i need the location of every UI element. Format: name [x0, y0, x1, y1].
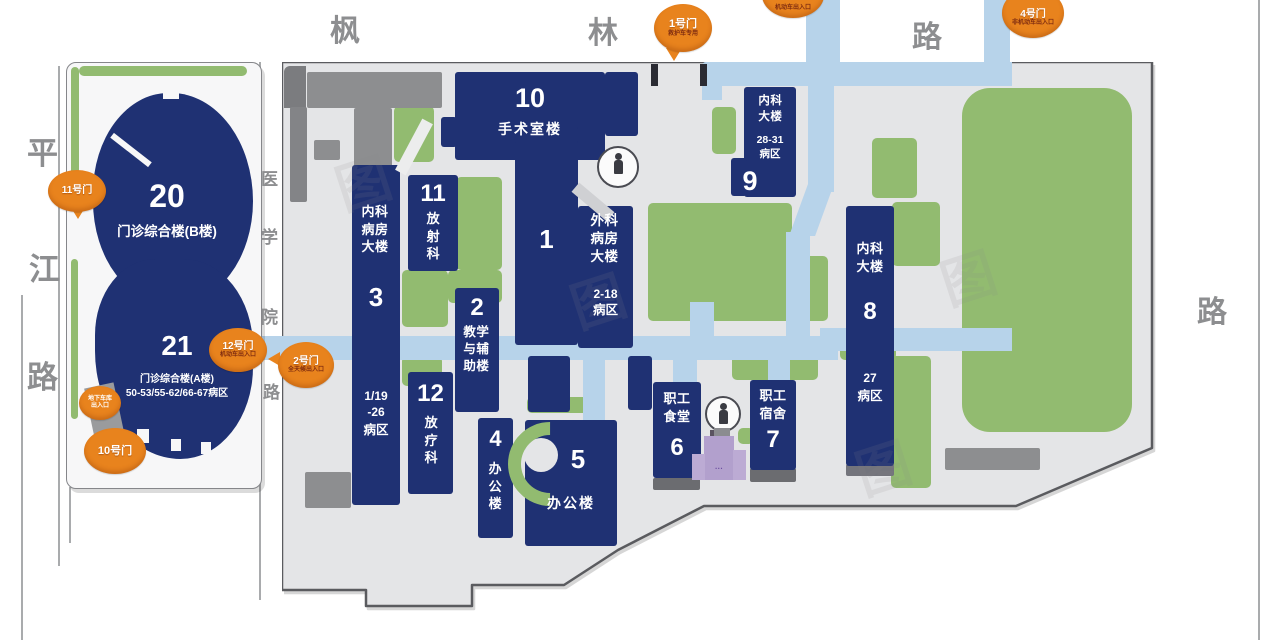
building-10-wing[interactable] [605, 72, 638, 136]
road-label-pingjiang-2: 江 [29, 244, 60, 289]
building-11-label: 放射科 [426, 210, 440, 263]
building-annex[interactable] [628, 356, 652, 410]
gate-4-label: 4号门 [1020, 9, 1046, 21]
garage-entrance-label: 出入口 [91, 403, 109, 410]
road-boundary-line [69, 487, 71, 543]
road-segment-top-horizontal[interactable] [702, 62, 1012, 86]
gray-building [307, 72, 442, 108]
gate-10-badge[interactable]: 10号门 [84, 428, 146, 474]
building-8-wards: 27 [846, 370, 894, 386]
gate-12-badge[interactable]: 12号门 机动车出入口 [209, 328, 267, 372]
gate-2-note: 全天候出入口 [288, 367, 324, 374]
gray-building [945, 448, 1040, 470]
outpatient-block: 20 门诊综合楼(B楼) 21 门诊综合楼(A楼) 50-53/55-62/66… [66, 62, 262, 489]
road-label-pingjiang-3: 路 [27, 352, 58, 397]
road-label-fenglin-3: 路 [912, 12, 942, 56]
building-5-number: 5 [539, 442, 617, 477]
purple-building[interactable] [704, 436, 734, 480]
gate-2-label: 2号门 [293, 356, 319, 368]
building-2-number: 2 [455, 292, 499, 324]
gate-11-label: 11号门 [62, 185, 93, 197]
purple-building-label: ··· [696, 464, 742, 473]
statue-icon [705, 396, 741, 432]
road-segment-vertical[interactable] [808, 84, 834, 192]
building-8-number: 8 [846, 296, 894, 328]
gray-building [305, 472, 351, 508]
hospital-campus-map: 平 江 路 枫 林 路 医 学 院 路 路 图 图 图 图 [0, 0, 1272, 640]
lawn [71, 67, 79, 185]
lawn [71, 259, 78, 419]
lawn [648, 203, 792, 321]
lawn [402, 270, 448, 327]
blob-notch [171, 439, 181, 451]
building-11-number: 11 [408, 178, 458, 210]
building-20-label: 门诊综合楼(B楼) [85, 223, 249, 241]
road-segment-stub[interactable] [702, 84, 722, 100]
road-label-yixueyuan-1: 医 [261, 165, 278, 190]
building-3-wards: 1/19 [352, 388, 400, 404]
gray-building [284, 66, 306, 108]
gate-2-badge[interactable]: 2号门 全天候出入口 [278, 342, 334, 388]
garage-entrance-badge[interactable]: 地下车库 出入口 [79, 386, 121, 420]
road-boundary-line [58, 66, 60, 566]
building-6-label: 职工食堂 [663, 390, 691, 425]
building-7-label: 职工宿舍 [759, 387, 787, 422]
gate-4-badge[interactable]: 4号门 非机动车出入口 [1002, 0, 1064, 38]
garage-entrance-label: 地下车库 [88, 396, 112, 403]
lawn [456, 177, 502, 270]
building-9-wards: 28-31 [744, 133, 796, 147]
gate-10-label: 10号门 [98, 445, 132, 458]
building-21-number: 21 [147, 327, 207, 365]
building-10-label: 手术室楼 [455, 120, 605, 139]
building-annex[interactable] [528, 356, 570, 412]
lawn [79, 66, 247, 76]
blob-notch [163, 89, 179, 99]
gate-12-note: 机动车出入口 [220, 352, 256, 359]
road-label-pingjiang-1: 平 [27, 128, 58, 173]
gate-4-note: 非机动车出入口 [1012, 20, 1054, 27]
road-label-yixueyuan-4: 路 [263, 378, 280, 403]
building-9-wards: 病区 [744, 147, 796, 161]
building-6-number: 6 [653, 432, 701, 464]
building-2-label: 教学与辅助楼 [463, 324, 490, 375]
gate-12-label: 12号门 [222, 341, 253, 353]
building-3-wards: 病区 [352, 422, 400, 439]
building-9-label: 内科大楼 [758, 94, 783, 125]
gate-1-note: 救护车专用 [668, 31, 698, 38]
building-3-number: 3 [352, 280, 400, 315]
road-label-right: 路 [1197, 287, 1227, 331]
building-1-panel-wards: 病区 [578, 302, 633, 319]
building-10-number: 10 [455, 80, 605, 116]
building-12-label: 放疗科 [424, 414, 438, 467]
lawn [712, 107, 736, 154]
gray-building [750, 468, 796, 482]
building-9-number: 9 [733, 163, 767, 199]
statue-head [720, 403, 727, 410]
statue-head [615, 153, 622, 160]
building-21-label: 门诊综合楼(A楼) [107, 373, 247, 387]
statue-body [719, 410, 728, 424]
statue-icon [597, 146, 639, 188]
gate-wall-tick [700, 64, 707, 86]
road-label-yixueyuan-3: 院 [261, 303, 278, 328]
gate-1-label: 1号门 [669, 18, 697, 31]
building-1-panel-wards: 2-18 [578, 286, 633, 302]
gate-1-badge[interactable]: 1号门 救护车专用 [654, 4, 712, 52]
building-20-number: 20 [127, 175, 207, 218]
building-1-panel-label: 外科病房大楼 [590, 212, 619, 267]
building-5-label: 办公楼 [525, 494, 617, 513]
road-label-yixueyuan-2: 学 [261, 223, 278, 248]
gate-11-badge[interactable]: 11号门 [48, 170, 106, 212]
building-12-number: 12 [408, 378, 453, 410]
gray-building [290, 107, 307, 202]
building-4-number: 4 [478, 424, 513, 454]
blob-notch [201, 442, 211, 454]
road-label-fenglin-1: 枫 [330, 6, 360, 50]
building-7-number: 7 [750, 424, 796, 456]
road-label-fenglin-2: 林 [588, 8, 618, 52]
road-boundary-line [21, 295, 23, 640]
statue-body [614, 160, 623, 174]
building-4-label: 办公楼 [488, 460, 502, 513]
building-8-wards: 病区 [846, 388, 894, 405]
building-8-label: 内科大楼 [856, 240, 884, 275]
road-segment-vertical[interactable] [786, 232, 810, 340]
gate-wall-tick [651, 64, 658, 86]
road-segment-stub[interactable] [690, 302, 714, 338]
building-3-label: 内科病房大楼 [361, 203, 389, 256]
road-boundary-line [1258, 0, 1260, 640]
lawn [872, 138, 917, 198]
building-3-wards: -26 [352, 404, 400, 420]
gate-partial-note: 机动车出入口 [775, 5, 811, 12]
statue-pedestal [714, 428, 730, 436]
building-1-number: 1 [515, 222, 578, 257]
